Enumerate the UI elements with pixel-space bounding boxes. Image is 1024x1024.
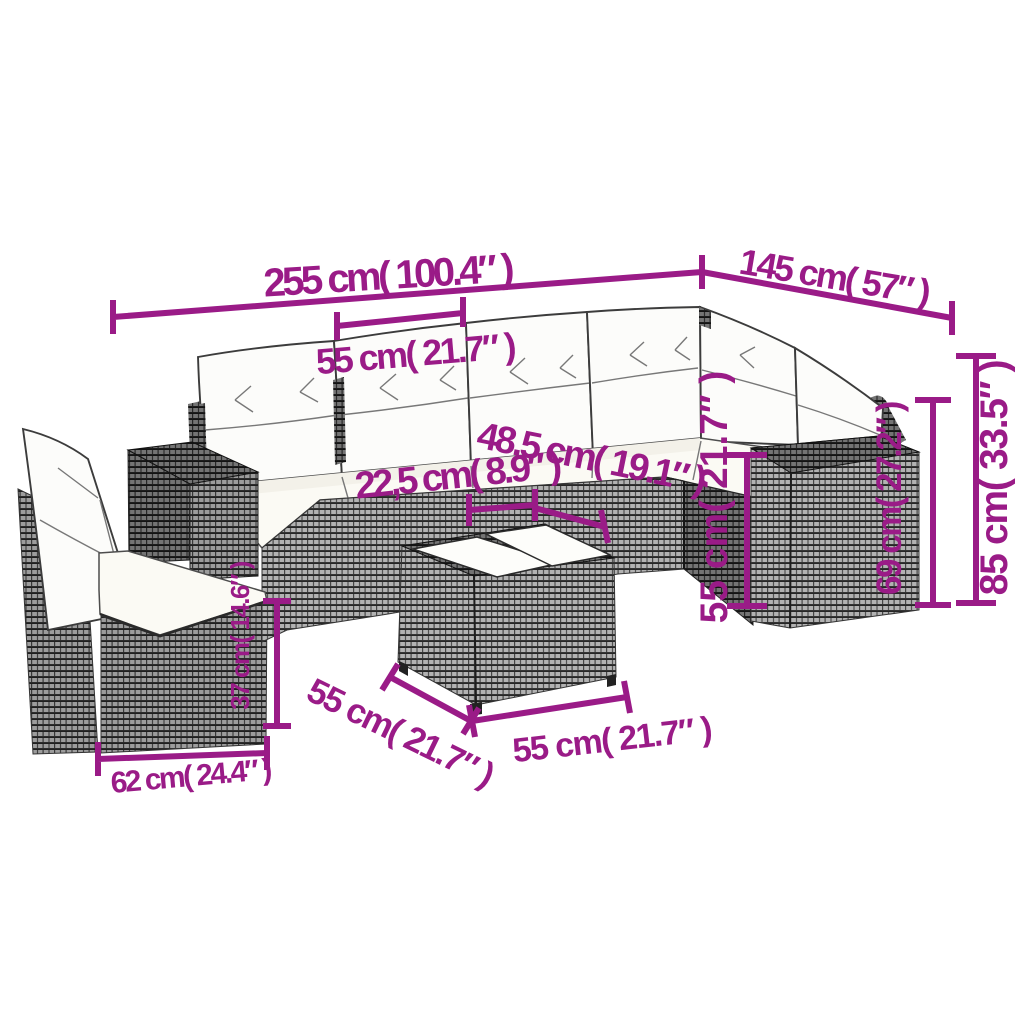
- svg-text:85 cm( 33.5″ ): 85 cm( 33.5″ ): [973, 360, 1016, 595]
- svg-text:55 cm( 21.7″ ): 55 cm( 21.7″ ): [693, 371, 736, 624]
- svg-text:37 cm( 14.6″ ): 37 cm( 14.6″ ): [225, 561, 255, 709]
- svg-text:69 cm( 27.2″ ): 69 cm( 27.2″ ): [870, 402, 909, 595]
